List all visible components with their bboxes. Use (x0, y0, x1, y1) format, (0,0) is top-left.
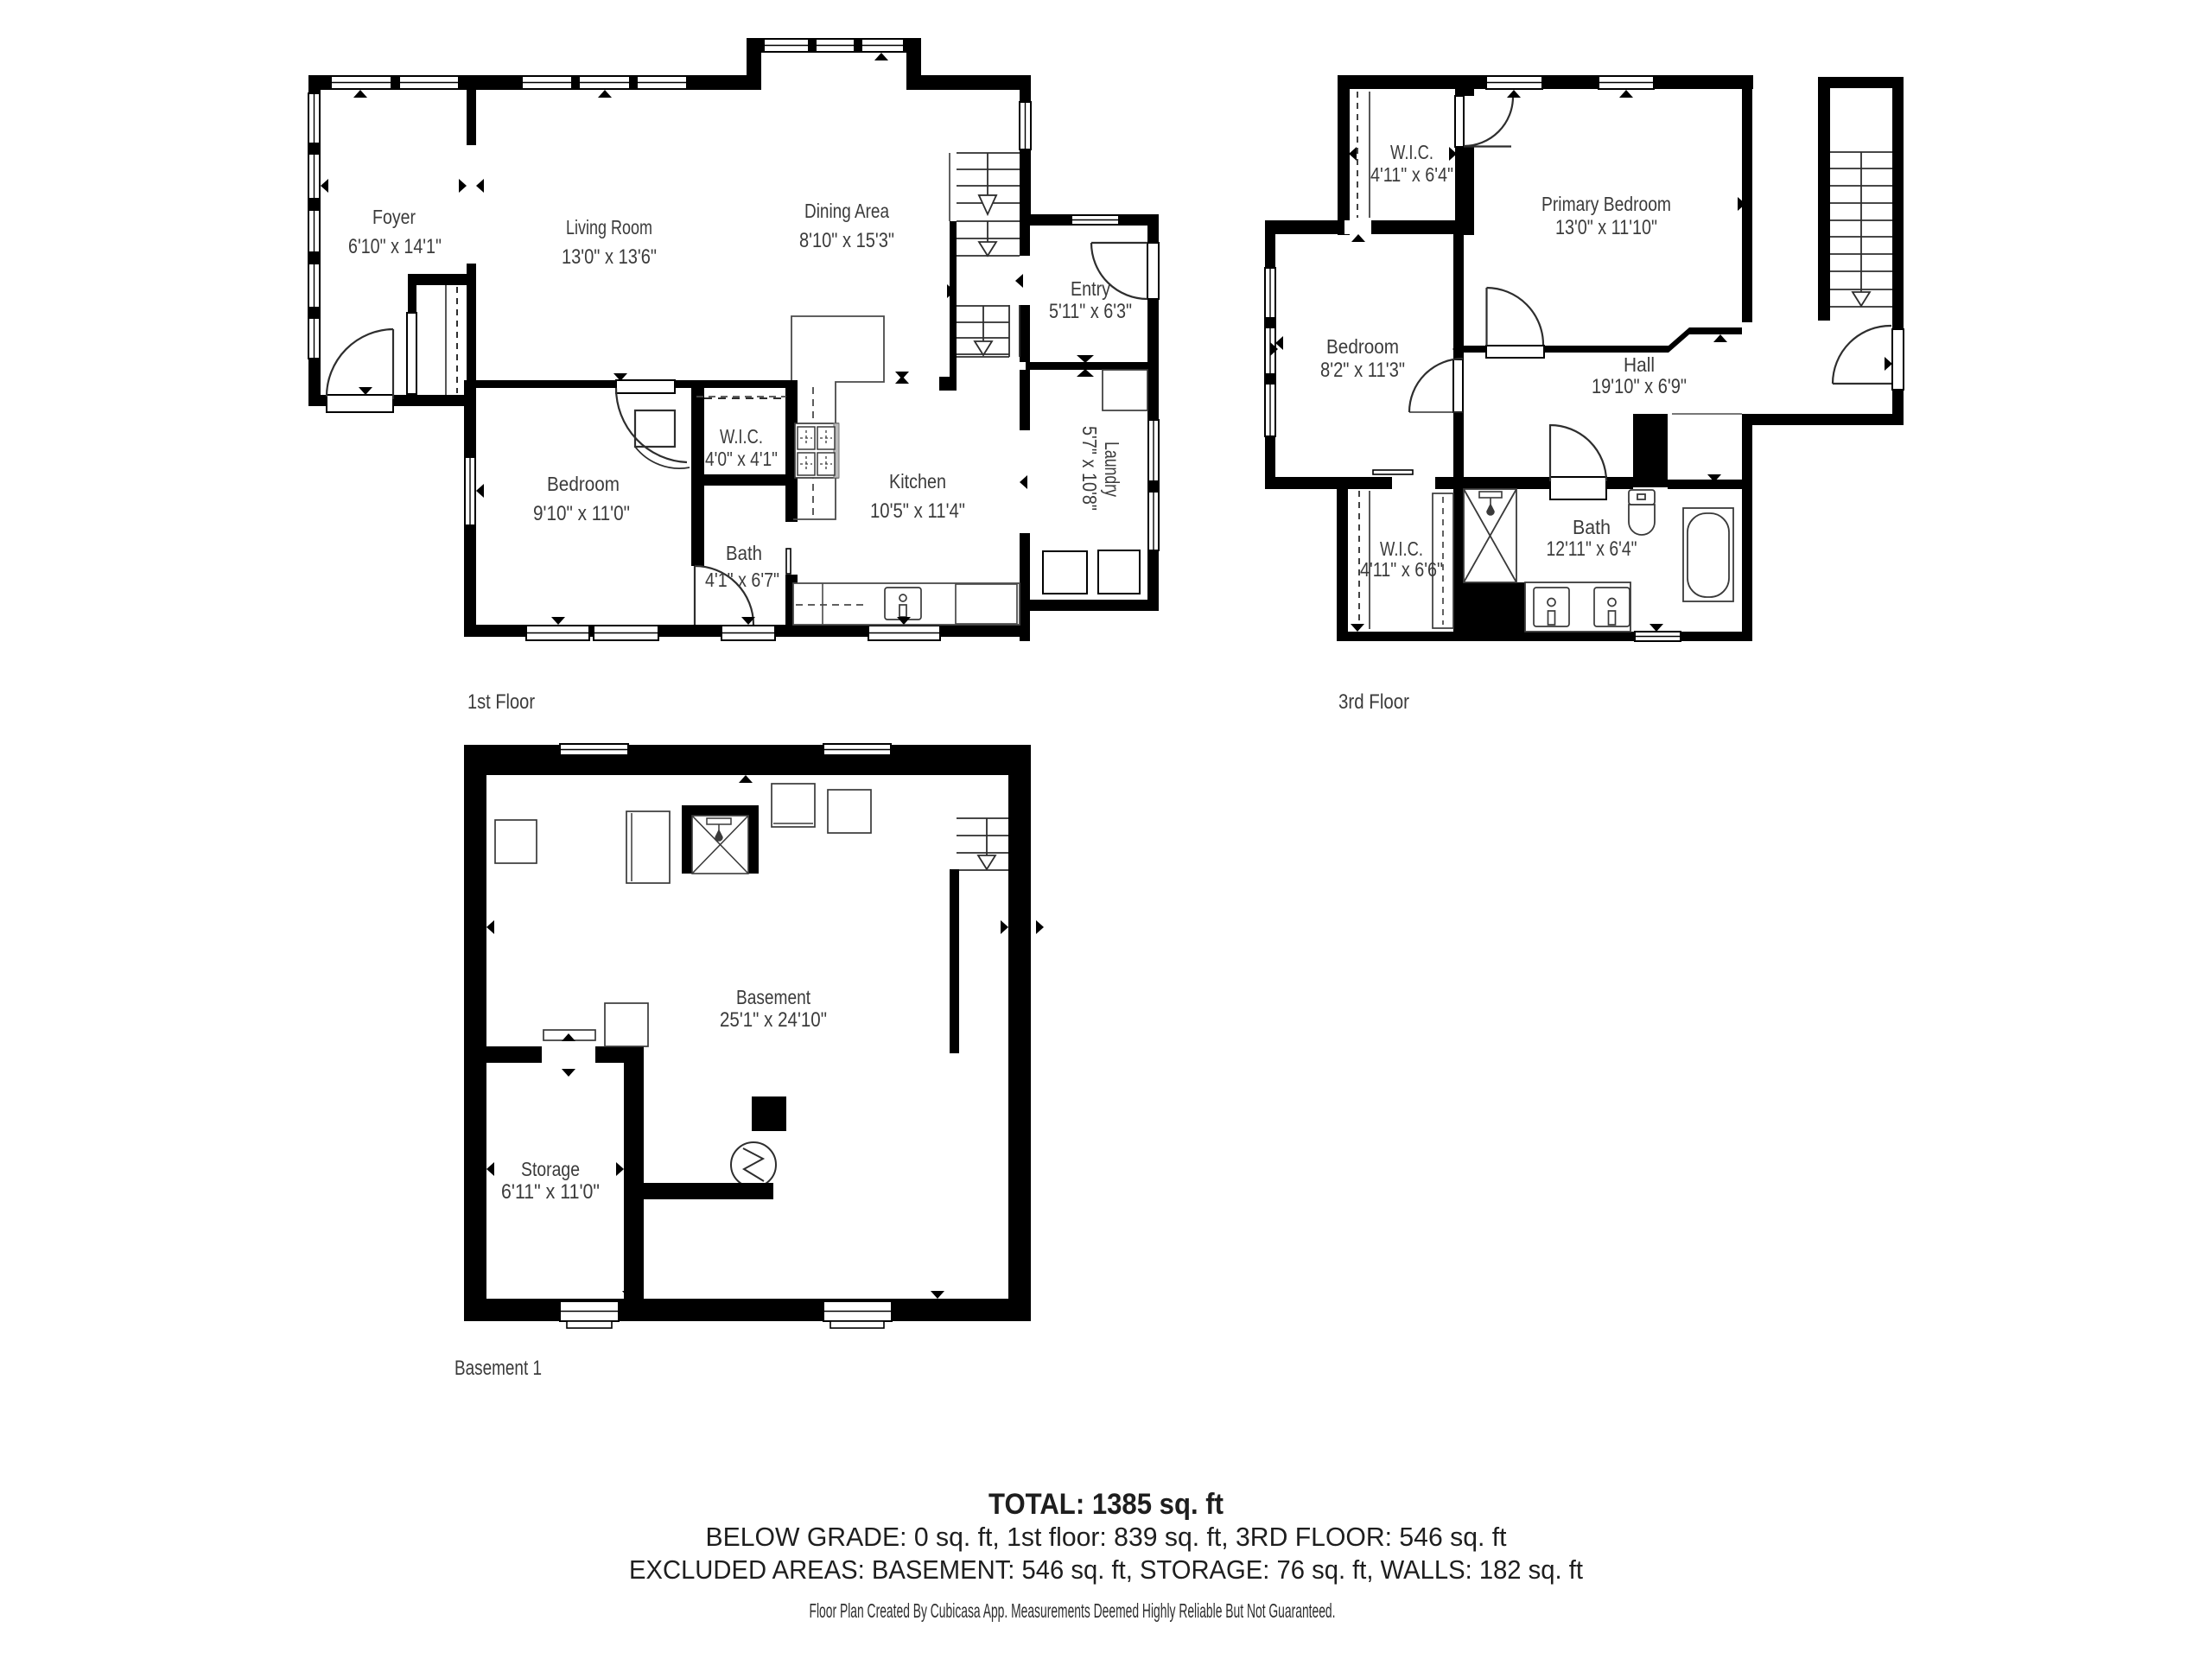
svg-text:Dining Area: Dining Area (804, 200, 890, 222)
svg-text:Bedroom: Bedroom (1326, 335, 1399, 358)
svg-text:Bath: Bath (1573, 516, 1611, 538)
svg-text:4'11" x 6'4": 4'11" x 6'4" (1370, 163, 1453, 186)
svg-text:W.I.C.: W.I.C. (1390, 141, 1433, 163)
svg-text:Foyer: Foyer (372, 206, 416, 228)
svg-text:Entry: Entry (1071, 277, 1110, 300)
svg-text:W.I.C.: W.I.C. (1380, 537, 1423, 560)
svg-text:Laundry: Laundry (1101, 442, 1123, 497)
svg-text:TOTAL: 1385 sq. ft: TOTAL: 1385 sq. ft (988, 1488, 1224, 1521)
svg-text:Primary Bedroom: Primary Bedroom (1541, 193, 1671, 215)
svg-text:Kitchen: Kitchen (889, 470, 946, 493)
svg-text:8'10" x 15'3": 8'10" x 15'3" (799, 229, 894, 252)
svg-text:8'2" x 11'3": 8'2" x 11'3" (1320, 359, 1405, 382)
svg-text:Living Room: Living Room (566, 216, 652, 238)
svg-text:10'5" x 11'4": 10'5" x 11'4" (870, 499, 965, 523)
svg-text:4'1" x 6'7": 4'1" x 6'7" (705, 569, 779, 591)
svg-text:EXCLUDED AREAS: BASEMENT: 546: EXCLUDED AREAS: BASEMENT: 546 sq. ft, ST… (629, 1554, 1583, 1585)
svg-text:5'7" x 10'8": 5'7" x 10'8" (1078, 426, 1101, 511)
svg-text:Basement 1: Basement 1 (454, 1357, 542, 1380)
svg-text:19'10" x 6'9": 19'10" x 6'9" (1592, 375, 1687, 398)
svg-text:13'0" x 11'10": 13'0" x 11'10" (1555, 216, 1657, 239)
svg-text:Storage: Storage (521, 1158, 580, 1180)
svg-text:9'10" x 11'0": 9'10" x 11'0" (533, 502, 630, 525)
svg-text:Bath: Bath (726, 542, 762, 564)
svg-text:Floor Plan Created By Cubicasa: Floor Plan Created By Cubicasa App. Meas… (810, 1599, 1336, 1622)
svg-text:BELOW GRADE: 0 sq. ft, 1st flo: BELOW GRADE: 0 sq. ft, 1st floor: 839 sq… (706, 1522, 1507, 1552)
svg-text:12'11" x 6'4": 12'11" x 6'4" (1547, 537, 1637, 561)
svg-text:6'11" x 11'0": 6'11" x 11'0" (501, 1180, 600, 1204)
svg-text:Basement: Basement (736, 986, 810, 1008)
svg-text:Hall: Hall (1624, 353, 1655, 376)
svg-text:4'11" x 6'6": 4'11" x 6'6" (1360, 558, 1443, 581)
svg-text:Bedroom: Bedroom (547, 473, 620, 495)
svg-text:5'11" x 6'3": 5'11" x 6'3" (1049, 300, 1132, 323)
svg-text:1st Floor: 1st Floor (467, 690, 535, 714)
svg-text:3rd Floor: 3rd Floor (1338, 690, 1409, 714)
svg-text:25'1" x 24'10": 25'1" x 24'10" (720, 1008, 827, 1032)
svg-text:W.I.C.: W.I.C. (720, 425, 763, 448)
svg-text:13'0" x 13'6": 13'0" x 13'6" (562, 245, 657, 269)
svg-text:4'0" x 4'1": 4'0" x 4'1" (705, 448, 778, 470)
svg-text:6'10" x 14'1": 6'10" x 14'1" (348, 235, 442, 258)
